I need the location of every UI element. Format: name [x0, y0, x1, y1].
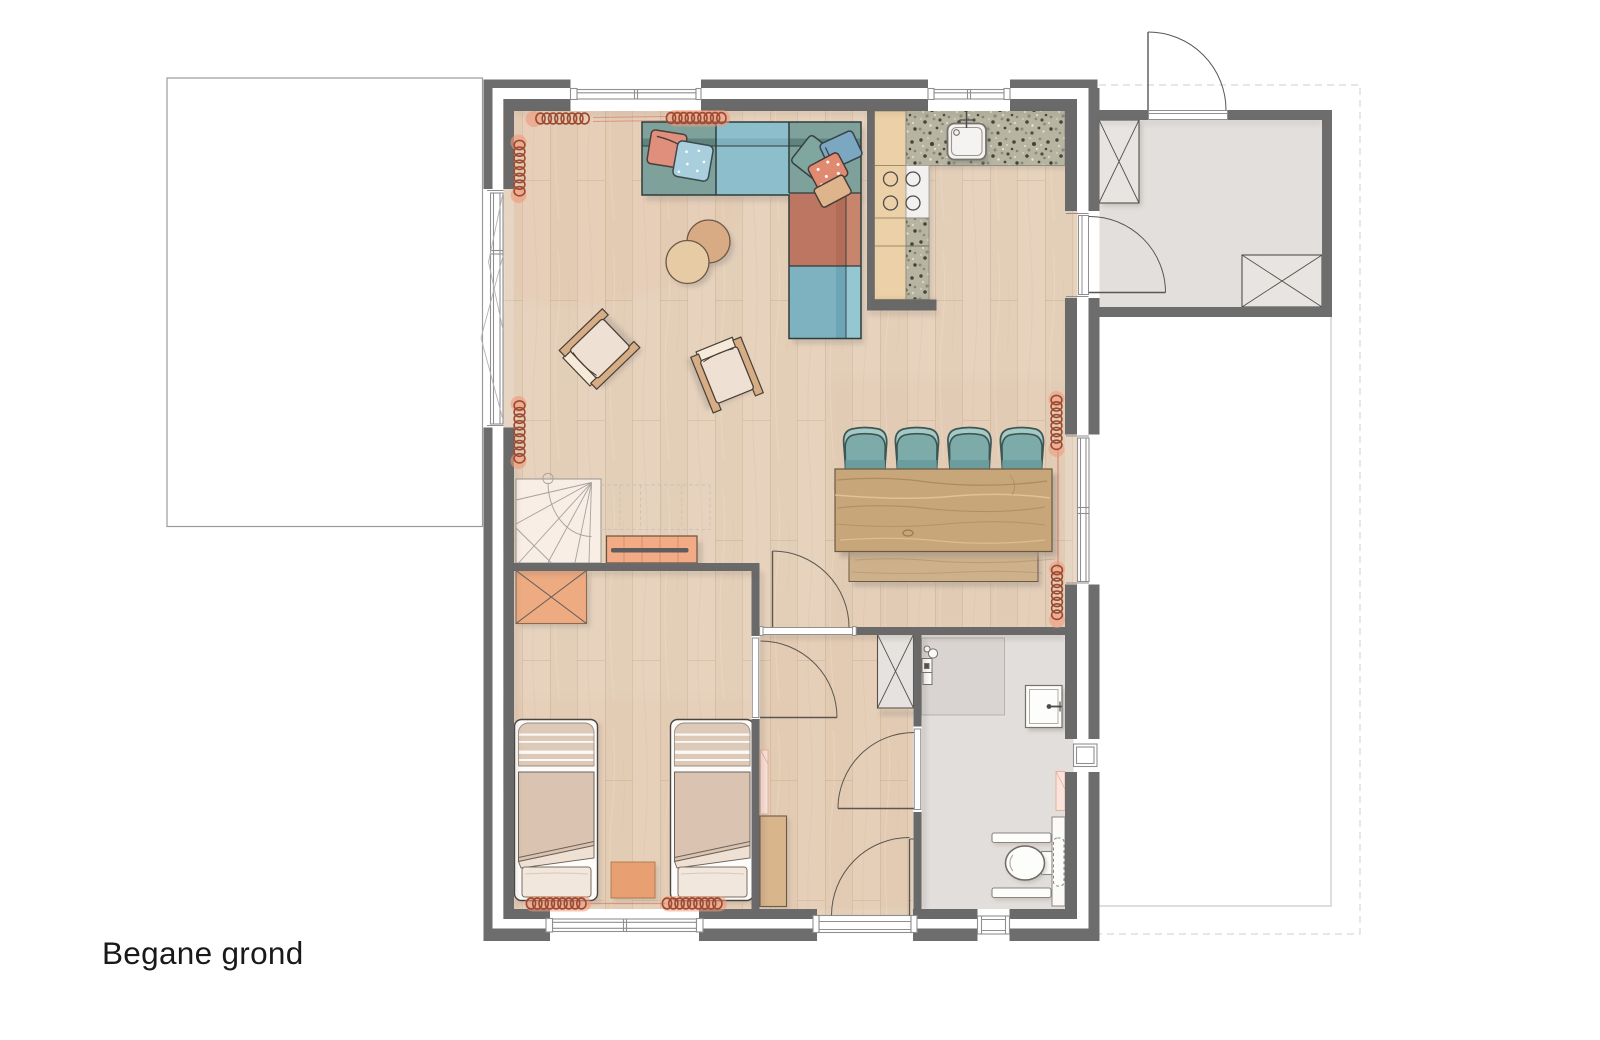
- svg-text:Begane grond: Begane grond: [102, 935, 304, 971]
